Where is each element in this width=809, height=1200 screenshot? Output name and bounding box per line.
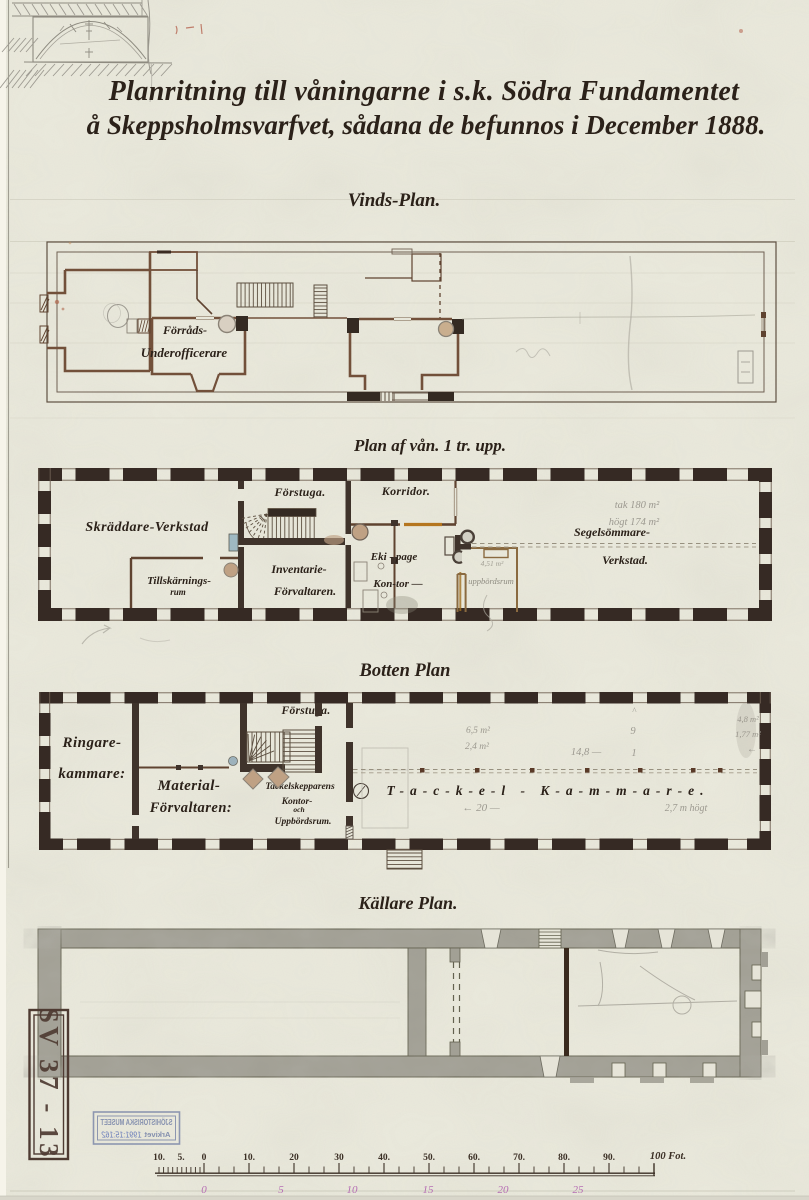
svg-text:0: 0 xyxy=(202,1153,207,1163)
svg-text:Korridor.: Korridor. xyxy=(381,484,430,498)
svg-text:2,7 m högt: 2,7 m högt xyxy=(665,803,708,814)
svg-text:Tillskärnings-: Tillskärnings- xyxy=(147,575,211,587)
svg-text:Inventarie-: Inventarie- xyxy=(270,562,326,576)
svg-text:högt 174 m²: högt 174 m² xyxy=(609,517,660,528)
svg-text:50.: 50. xyxy=(423,1153,435,1163)
svg-text:uppbördsrum: uppbördsrum xyxy=(468,576,514,586)
svg-text:Förråds-: Förråds- xyxy=(162,323,207,337)
svg-text:0: 0 xyxy=(201,1184,207,1196)
svg-text:Kon-tor —: Kon-tor — xyxy=(372,578,422,590)
svg-text:4,51 m²: 4,51 m² xyxy=(481,559,504,568)
svg-text:6,5 m²: 6,5 m² xyxy=(466,726,490,736)
svg-text:Plan af vån. 1 tr. upp.: Plan af vån. 1 tr. upp. xyxy=(353,436,506,455)
svg-text:40.: 40. xyxy=(378,1153,390,1163)
svg-text:70.: 70. xyxy=(513,1153,525,1163)
svg-text:Förvaltaren:: Förvaltaren: xyxy=(149,800,233,816)
svg-text:2,4 m²: 2,4 m² xyxy=(465,742,489,752)
svg-text:Material-: Material- xyxy=(157,778,221,794)
svg-text:10.: 10. xyxy=(153,1153,165,1163)
svg-text:Botten Plan: Botten Plan xyxy=(359,661,451,681)
svg-text:tak 180 m²: tak 180 m² xyxy=(615,500,660,511)
svg-text:Förstuga.: Förstuga. xyxy=(280,705,330,717)
svg-text:SJÖHISTORISKA MUSEET: SJÖHISTORISKA MUSEET xyxy=(100,1118,172,1127)
svg-text:Vinds-Plan.: Vinds-Plan. xyxy=(348,190,440,211)
svg-text:60.: 60. xyxy=(468,1153,480,1163)
svg-text:Källare Plan.: Källare Plan. xyxy=(357,893,457,913)
svg-text:20: 20 xyxy=(498,1184,510,1196)
svg-text:1: 1 xyxy=(631,748,636,759)
svg-text:15: 15 xyxy=(423,1184,435,1196)
svg-text:1991:15:162: 1991:15:162 xyxy=(101,1130,141,1140)
svg-text:30: 30 xyxy=(334,1153,344,1163)
svg-text:Underofficerare: Underofficerare xyxy=(141,345,228,360)
svg-text:10: 10 xyxy=(347,1184,359,1196)
svg-text:rum: rum xyxy=(170,587,186,597)
svg-text:10.: 10. xyxy=(243,1153,255,1163)
svg-text:5.: 5. xyxy=(177,1153,184,1163)
svg-text:Förvaltaren.: Förvaltaren. xyxy=(273,584,336,598)
svg-text:Arkivet: Arkivet xyxy=(144,1130,171,1139)
svg-text:T-a-c-k-e-l - K-a-m-m-a-r-e.: T-a-c-k-e-l - K-a-m-m-a-r-e. xyxy=(386,783,709,798)
svg-text:Förstuga.: Förstuga. xyxy=(273,485,325,499)
svg-text:SV 37 - 13: SV 37 - 13 xyxy=(34,1008,64,1160)
svg-text:å Skeppsholmsvarfvet, sådana d: å Skeppsholmsvarfvet, sådana de befunnos… xyxy=(87,110,766,140)
svg-text:9: 9 xyxy=(630,726,636,737)
svg-text:14,8 —: 14,8 — xyxy=(571,747,602,758)
svg-text:80.: 80. xyxy=(558,1153,570,1163)
svg-text:20: 20 xyxy=(289,1153,299,1163)
svg-text:90.: 90. xyxy=(603,1153,615,1163)
svg-text:kammare:: kammare: xyxy=(58,766,125,782)
svg-text:25: 25 xyxy=(573,1184,585,1196)
svg-text:Planritning till våningarne i: Planritning till våningarne i s.k. Södra… xyxy=(108,76,741,107)
svg-text:5: 5 xyxy=(278,1184,284,1196)
svg-text:Uppbördsrum.: Uppbördsrum. xyxy=(275,817,332,827)
svg-text:← 20 —: ← 20 — xyxy=(462,802,500,814)
svg-text:Ringare-: Ringare- xyxy=(61,735,121,751)
svg-text:Eki - page: Eki - page xyxy=(370,551,418,563)
svg-text:och: och xyxy=(293,805,304,814)
svg-text:Verkstad.: Verkstad. xyxy=(602,553,648,567)
svg-text:100 Fot.: 100 Fot. xyxy=(650,1151,686,1162)
svg-text:Skräddare-Verkstad: Skräddare-Verkstad xyxy=(85,520,209,535)
